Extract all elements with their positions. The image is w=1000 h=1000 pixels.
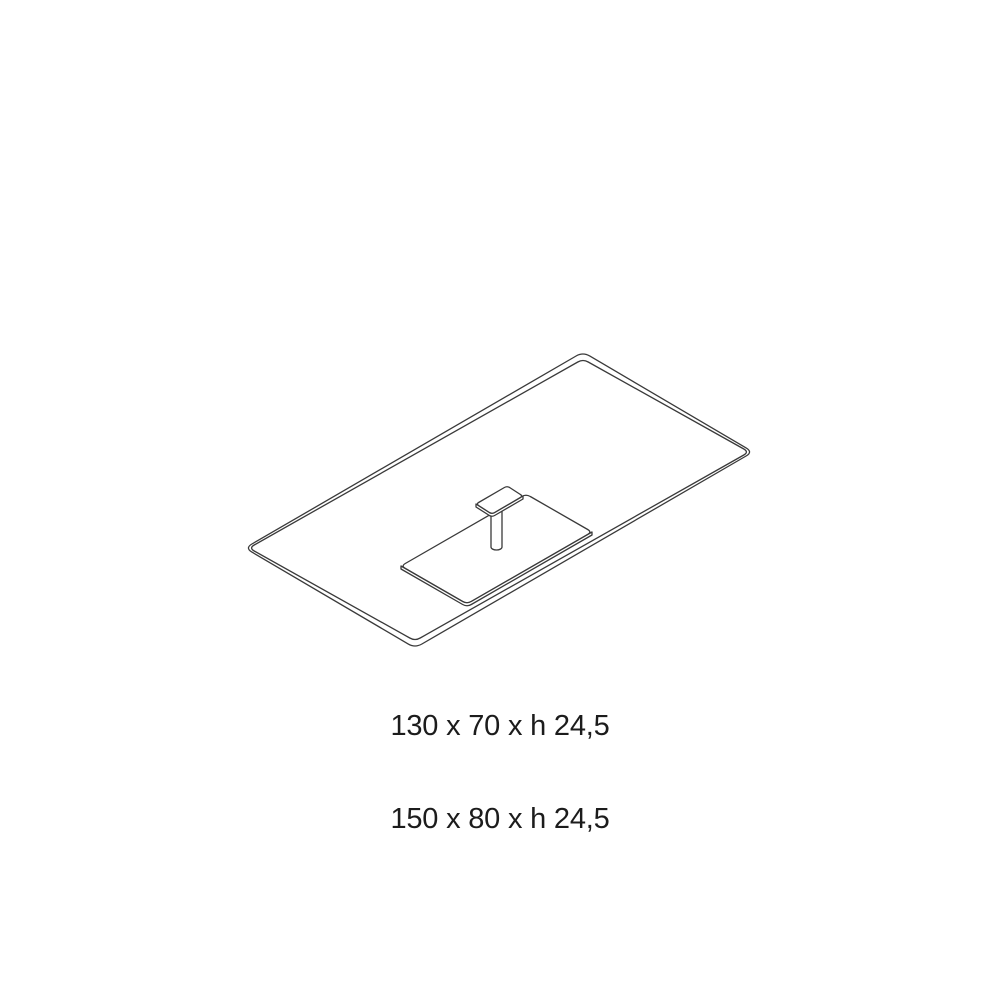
size-option-1: 130 x 70 x h 24,5 — [0, 710, 1000, 742]
isometric-table-drawing — [0, 0, 1000, 1000]
product-dimension-sheet: 130 x 70 x h 24,5 150 x 80 x h 24,5 — [0, 0, 1000, 1000]
size-option-2: 150 x 80 x h 24,5 — [0, 803, 1000, 835]
